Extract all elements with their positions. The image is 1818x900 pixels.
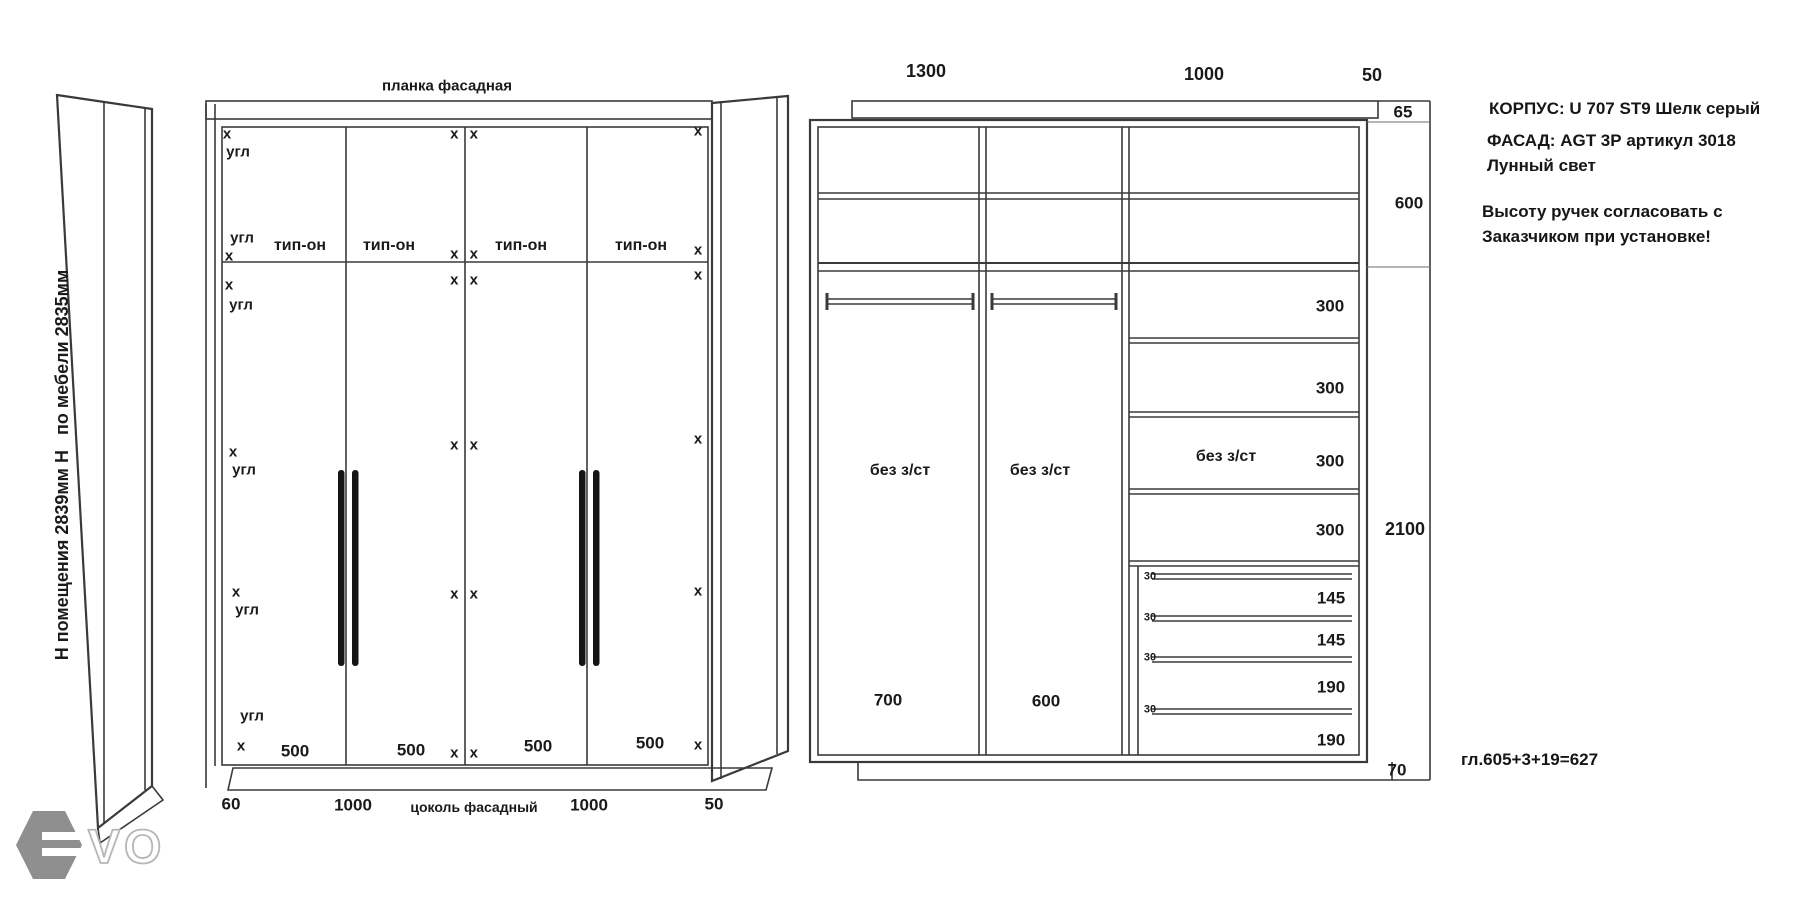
x-pair-marker: x x [450, 587, 478, 602]
x-marker: x [694, 268, 702, 283]
door-width-dim-2: 500 [397, 742, 425, 759]
drawer-height-dim-145: 145 [1317, 590, 1345, 607]
door-width-dim-1: 500 [281, 743, 309, 760]
drawer-gap-dim-30: 30 [1144, 613, 1156, 624]
corner-marker: угл [235, 603, 259, 618]
x-marker: x [694, 243, 702, 258]
carcass-inner [818, 127, 1359, 755]
x-marker: x [223, 127, 231, 142]
x-pair-marker: x x [450, 247, 478, 262]
drawer-height-dim-190: 190 [1317, 732, 1345, 749]
handle-bar [579, 470, 586, 666]
side-dim-70: 70 [1388, 762, 1407, 779]
hinge-label-door2: тип-он [363, 238, 415, 254]
drawer-gap-dim-30: 30 [1144, 572, 1156, 583]
plinth-strip [228, 768, 772, 790]
carcass-outline [810, 120, 1367, 762]
corner-marker: угл [232, 463, 256, 478]
corner-marker: угл [229, 298, 253, 313]
door-width-dim-3: 500 [524, 738, 552, 755]
compartment-width-600: 600 [1032, 693, 1060, 710]
section-width-dim-50: 50 [1362, 66, 1382, 84]
shelf-dim-300: 300 [1316, 298, 1344, 315]
bottom-dim-1000-right: 1000 [570, 797, 608, 814]
note-facade-material-2: Лунный свет [1487, 156, 1596, 176]
watermark-letters: VO [88, 821, 165, 874]
x-marker: x [225, 278, 233, 293]
shelf-dim-300: 300 [1316, 453, 1344, 470]
x-marker: x [232, 585, 240, 600]
hanging-rods [827, 293, 1116, 310]
x-marker: x [225, 249, 233, 264]
plinth-label: цоколь фасадный [410, 800, 537, 814]
watermark-hexagon-icon [16, 811, 82, 879]
no-backwall-label-col3: без з/ст [1196, 449, 1256, 465]
bottom-dim-1000-left: 1000 [334, 797, 372, 814]
bottom-dim-left-gap: 60 [222, 796, 241, 813]
side-dim-65: 65 [1394, 104, 1413, 121]
x-pair-marker: x x [450, 127, 478, 142]
note-body-material: КОРПУС: U 707 ST9 Шелк серый [1489, 99, 1760, 119]
drawer-height-dim-145: 145 [1317, 632, 1345, 649]
x-pair-marker: x x [450, 438, 478, 453]
hinge-label-door3: тип-он [495, 238, 547, 254]
top-strip [852, 101, 1378, 118]
x-pair-marker: x x [450, 746, 478, 761]
compartment-width-700: 700 [874, 692, 902, 709]
no-backwall-label-col1: без з/ст [870, 463, 930, 479]
bottom-dim-right-gap: 50 [705, 796, 724, 813]
handle-bar [593, 470, 600, 666]
no-backwall-label-col2: без з/ст [1010, 463, 1070, 479]
side-dim-600: 600 [1395, 195, 1423, 212]
hinge-label-door4: тип-он [615, 238, 667, 254]
door-handles [338, 470, 600, 666]
room-height-vertical-label: Н помещения 2839мм Н по мебели 2835мм [53, 270, 71, 661]
drawer-height-dim-190: 190 [1317, 679, 1345, 696]
x-pair-marker: x x [450, 273, 478, 288]
facade-strip-label: планка фасадная [382, 79, 512, 94]
section-width-dim-1300: 1300 [906, 62, 946, 80]
corner-marker: угл [240, 709, 264, 724]
shelf-dim-300: 300 [1316, 380, 1344, 397]
note-facade-material: ФАСАД: AGT 3Р артикул 3018 [1487, 131, 1736, 151]
drawer-gap-dim-30: 30 [1144, 653, 1156, 664]
corner-marker: угл [226, 145, 250, 160]
side-dim-2100: 2100 [1385, 520, 1425, 538]
corner-marker: угл [230, 231, 254, 246]
note-handles-2: Заказчиком при установке! [1482, 227, 1711, 247]
handle-bar [338, 470, 345, 666]
facade-strip [206, 101, 712, 119]
left-wardrobe-front-view [57, 95, 788, 843]
handle-bar [352, 470, 359, 666]
hinge-label-door1: тип-он [274, 238, 326, 254]
drawer-gap-dim-30: 30 [1144, 705, 1156, 716]
x-marker: x [229, 445, 237, 460]
door-width-dim-4: 500 [636, 735, 664, 752]
section-width-dim-1000: 1000 [1184, 65, 1224, 83]
x-marker: x [694, 584, 702, 599]
furniture-blueprint: VO планка фасадная Н помещения 2839мм Н … [0, 0, 1818, 900]
note-handles-1: Высоту ручек согласовать с [1482, 202, 1723, 222]
x-marker: x [694, 738, 702, 753]
section-plinth [858, 762, 1392, 780]
x-marker: x [237, 739, 245, 754]
evo-watermark: VO [16, 811, 165, 879]
shelf-dim-300: 300 [1316, 522, 1344, 539]
depth-formula: гл.605+3+19=627 [1461, 750, 1598, 770]
x-marker: x [694, 124, 702, 139]
x-marker: x [694, 432, 702, 447]
